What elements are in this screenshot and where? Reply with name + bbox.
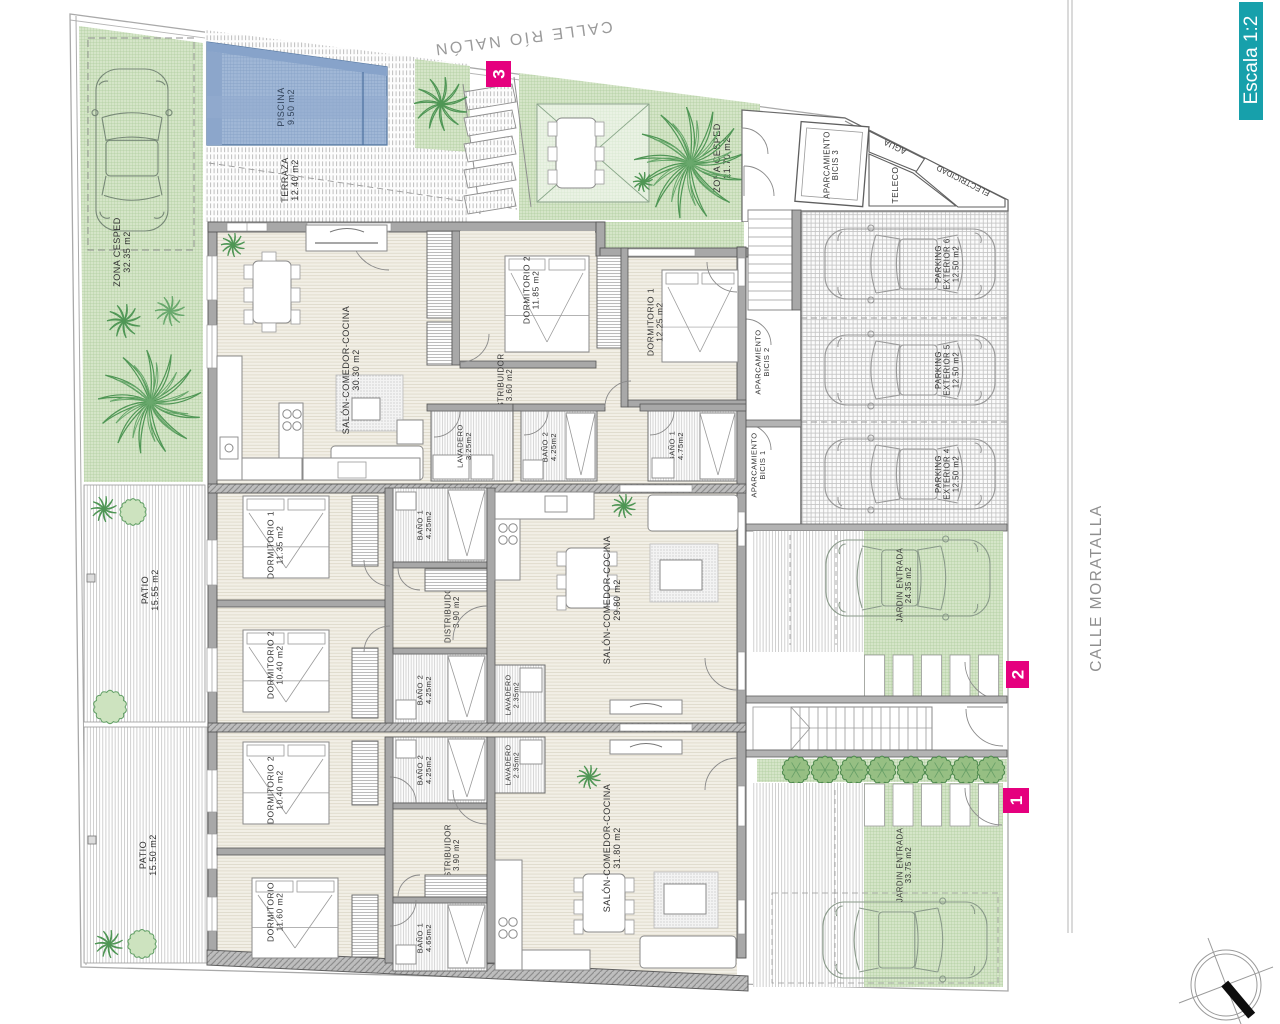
svg-text:4.25m2: 4.25m2	[549, 433, 558, 461]
svg-text:15.55 m2: 15.55 m2	[150, 569, 160, 611]
svg-text:BICIS 2: BICIS 2	[762, 347, 771, 376]
svg-text:Escala 1:2: Escala 1:2	[1241, 16, 1262, 105]
svg-text:3.60 m2: 3.60 m2	[505, 369, 514, 401]
svg-text:LAVADERO: LAVADERO	[506, 744, 513, 785]
svg-text:24.35 m2: 24.35 m2	[904, 567, 913, 604]
svg-text:32.35 m2: 32.35 m2	[122, 231, 132, 273]
svg-text:33.75 m2: 33.75 m2	[904, 847, 913, 884]
svg-text:4.65m2: 4.65m2	[424, 924, 433, 952]
svg-text:BICIS 3: BICIS 3	[831, 150, 840, 180]
svg-text:30.30 m2: 30.30 m2	[351, 349, 361, 391]
svg-text:15.50 m2: 15.50 m2	[148, 834, 158, 876]
svg-text:12.25 m2: 12.25 m2	[655, 302, 665, 341]
svg-text:ZONA CESPED: ZONA CESPED	[112, 217, 122, 287]
svg-text:3: 3	[490, 69, 509, 78]
svg-text:3.90 m2: 3.90 m2	[452, 839, 461, 871]
svg-text:11.60 m2: 11.60 m2	[275, 893, 285, 932]
svg-text:4.75m2: 4.75m2	[676, 432, 685, 460]
svg-text:BICIS 1: BICIS 1	[758, 450, 767, 479]
svg-text:4.25m2: 4.25m2	[424, 511, 433, 539]
svg-text:12.40 m2: 12.40 m2	[290, 159, 300, 201]
svg-text:4.25m2: 4.25m2	[424, 676, 433, 704]
svg-text:11.35 m2: 11.35 m2	[275, 526, 285, 565]
svg-text:LAVADERO: LAVADERO	[506, 674, 513, 715]
svg-text:3.25m2: 3.25m2	[464, 432, 473, 460]
svg-text:2.35m2: 2.35m2	[513, 752, 520, 778]
svg-text:29.80 m2: 29.80 m2	[612, 579, 622, 621]
svg-text:10.40 m2: 10.40 m2	[275, 770, 285, 809]
svg-text:3.90 m2: 3.90 m2	[452, 596, 461, 628]
svg-text:10.40 m2: 10.40 m2	[275, 645, 285, 684]
svg-text:4.25m2: 4.25m2	[424, 756, 433, 784]
svg-text:1: 1	[1007, 796, 1026, 805]
svg-text:2.35m2: 2.35m2	[513, 682, 520, 708]
svg-text:SALÓN-COMEDOR-COCINA: SALÓN-COMEDOR-COCINA	[602, 536, 612, 665]
svg-text:31.80 m2: 31.80 m2	[612, 827, 622, 869]
svg-text:PATIO: PATIO	[138, 841, 148, 869]
svg-text:TERRAZA: TERRAZA	[280, 157, 290, 203]
svg-text:11.85 m2: 11.85 m2	[531, 271, 541, 310]
svg-text:SALÓN-COMEDOR-COCINA: SALÓN-COMEDOR-COCINA	[341, 306, 351, 435]
svg-text:CALLE MORATALLA: CALLE MORATALLA	[1088, 504, 1105, 672]
svg-text:12.50 m2: 12.50 m2	[951, 352, 960, 389]
svg-text:9.50 m2: 9.50 m2	[286, 89, 296, 125]
svg-text:PISCINA: PISCINA	[276, 87, 286, 127]
svg-text:12.50 m2: 12.50 m2	[951, 456, 960, 493]
svg-text:TELECO: TELECO	[890, 166, 900, 203]
svg-text:PATIO: PATIO	[140, 576, 150, 604]
svg-text:SALÓN-COMEDOR-COCINA: SALÓN-COMEDOR-COCINA	[602, 784, 612, 913]
svg-text:2: 2	[1009, 670, 1028, 679]
svg-text:12.50 m2: 12.50 m2	[951, 246, 960, 283]
